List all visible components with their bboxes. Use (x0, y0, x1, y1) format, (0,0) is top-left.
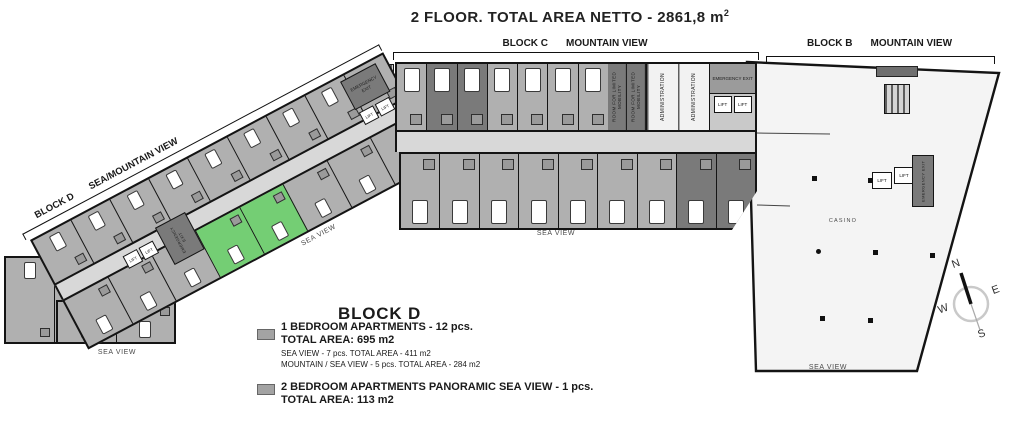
floorplan-canvas: 2 FLOOR. TOTAL AREA NETTO - 2861,8 m2 BL… (0, 0, 1024, 423)
column (820, 316, 825, 321)
legend-swatch-2bedroom (257, 384, 275, 395)
legend-1bedroom-label: 1 BEDROOM APARTMENTS - 12 pcs. (281, 321, 473, 333)
column (868, 318, 873, 323)
column (930, 253, 935, 258)
casino-label: CASINO (818, 218, 868, 224)
column (868, 178, 873, 183)
apartment-unit (598, 154, 637, 228)
administration-rooms: ADMINISTRATION ADMINISTRATION (646, 64, 710, 130)
apartment-unit (401, 154, 440, 228)
emergency-exit-room: EMERGENCY EXIT (710, 64, 755, 94)
legend-1bedroom-detail-sea: SEA VIEW - 7 pcs. TOTAL AREA - 411 m2 (281, 349, 431, 358)
sea-view-label-block-d: SEA VIEW (82, 349, 152, 356)
block-c: ROOM FOR LIMITED MOBILITY ROOM FOR LIMIT… (395, 62, 757, 230)
legend-2bedroom-total: TOTAL AREA: 113 m2 (281, 394, 394, 406)
page-title: 2 FLOOR. TOTAL AREA NETTO - 2861,8 m2 (330, 8, 810, 26)
lift: LIFT (734, 96, 752, 113)
apartment-unit (638, 154, 677, 228)
apartment-unit (717, 154, 755, 228)
legend-2bedroom-label: 2 BEDROOM APARTMENTS PANORAMIC SEA VIEW … (281, 381, 593, 393)
administration-room: ADMINISTRATION (678, 64, 709, 130)
room-limited-mobility: ROOM FOR LIMITED MOBILITY (608, 64, 627, 130)
apartment-unit (559, 154, 598, 228)
block-c-bottom-row (399, 152, 757, 230)
lift-lobby: LIFT LIFT (710, 94, 755, 113)
emergency-exit-room: EMERGENCY EXIT (912, 155, 934, 207)
block-c-corridor (395, 132, 757, 152)
apartment-unit (579, 64, 608, 130)
block-b-label: BLOCK BMOUNTAIN VIEW (766, 38, 993, 49)
column (816, 249, 821, 254)
block-c-top-apartments (397, 64, 608, 130)
apartment-unit (548, 64, 578, 130)
apartment-unit (518, 64, 548, 130)
block-b-stairs (884, 84, 910, 114)
block-c-view: MOUNTAIN VIEW (566, 38, 647, 49)
block-c-top-row: ROOM FOR LIMITED MOBILITY ROOM FOR LIMIT… (395, 62, 757, 132)
block-c-dimension-bracket (393, 52, 759, 60)
block-b-dark-room (876, 66, 918, 77)
title-superscript: 2 (724, 8, 729, 18)
apartment-unit (458, 64, 488, 130)
block-b-view: MOUNTAIN VIEW (871, 38, 952, 49)
legend-1bedroom-total: TOTAL AREA: 695 m2 (281, 334, 394, 346)
title-text: 2 FLOOR. TOTAL AREA NETTO - 2861,8 m (411, 9, 724, 26)
apartment-unit (488, 64, 518, 130)
lift: LIFT (894, 167, 914, 184)
apartment-unit (440, 154, 479, 228)
compass-needle-south (971, 304, 980, 330)
legend-swatch-1bedroom (257, 329, 275, 340)
sea-view-label-block-b: SEA VIEW (788, 364, 868, 371)
block-c-service-core: EMERGENCY EXIT LIFT LIFT (709, 64, 755, 130)
apartment-unit (677, 154, 716, 228)
block-b-name: BLOCK B (807, 38, 853, 49)
room-limited-mobility: ROOM FOR LIMITED MOBILITY (627, 64, 646, 130)
column (873, 250, 878, 255)
block-b-outline (747, 62, 999, 371)
administration-room: ADMINISTRATION (647, 64, 678, 130)
emergency-exit-label: EMERGENCY EXIT (913, 156, 933, 206)
legend-1bedroom-detail-mountain: MOUNTAIN / SEA VIEW - 5 pcs. TOTAL AREA … (281, 360, 480, 369)
apartment-unit (480, 154, 519, 228)
apartment-unit (397, 64, 427, 130)
apartment-unit (427, 64, 457, 130)
sea-view-label-block-c: SEA VIEW (516, 230, 596, 237)
column (812, 176, 817, 181)
block-c-label: BLOCK CMOUNTAIN VIEW (393, 38, 757, 49)
block-c-name: BLOCK C (502, 38, 548, 49)
limited-mobility-rooms: ROOM FOR LIMITED MOBILITY ROOM FOR LIMIT… (608, 64, 646, 130)
block-b-dimension-bracket (766, 56, 995, 64)
lift: LIFT (872, 172, 892, 189)
apartment-unit (519, 154, 558, 228)
lift: LIFT (714, 96, 732, 113)
